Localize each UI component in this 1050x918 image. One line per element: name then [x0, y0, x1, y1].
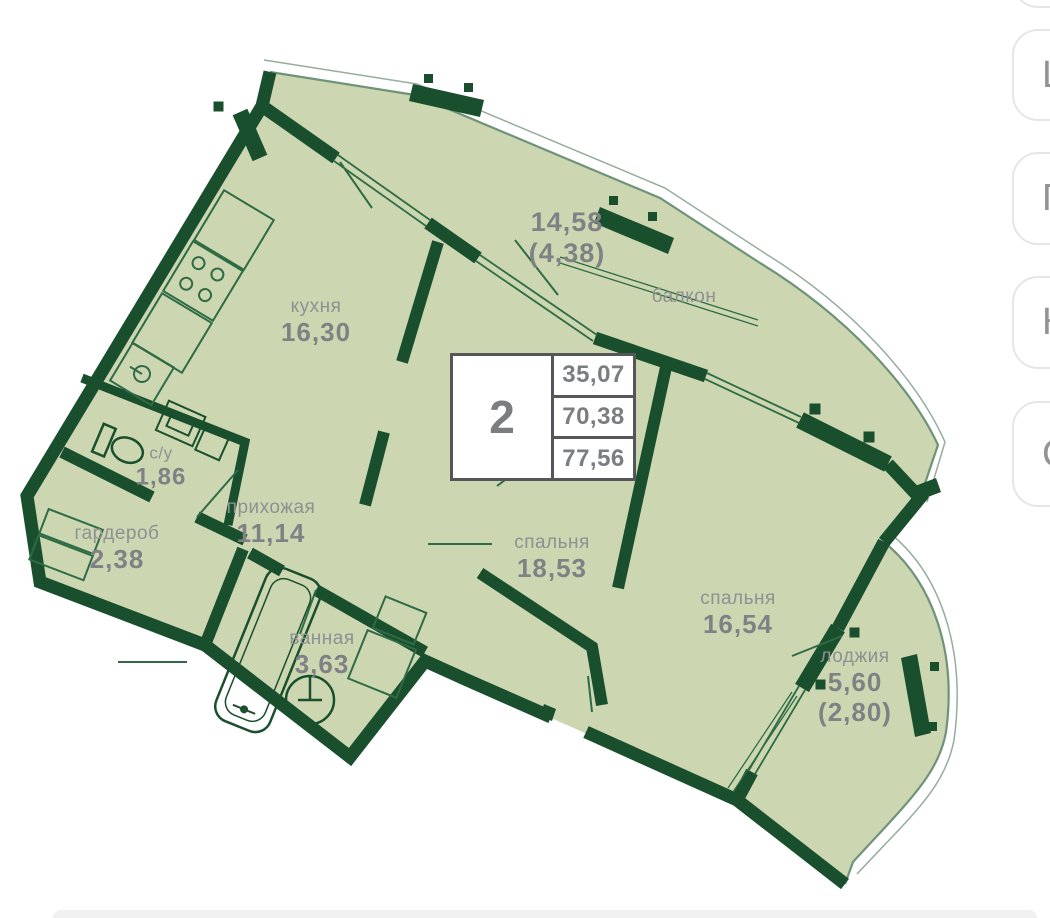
side-button-p[interactable]: П [1012, 152, 1050, 245]
floorplan-canvas: кухня 16,30 14,58 (4,38) балкон с/у 1,86… [0, 0, 1050, 918]
area-total: 70,38 [554, 395, 633, 437]
unit-info-box: 2 35,07 70,38 77,56 [450, 353, 636, 481]
side-button-label: С [1042, 433, 1050, 476]
area-living: 35,07 [554, 356, 633, 395]
areas-column: 35,07 70,38 77,56 [554, 356, 633, 478]
side-button-label: К [1042, 301, 1050, 344]
bottom-card-edge [53, 910, 1037, 918]
area-total-with-balcony: 77,56 [554, 436, 633, 478]
side-button-sh[interactable]: Ш [1012, 29, 1050, 121]
side-button-k[interactable]: К [1012, 276, 1050, 369]
side-button-label: П [1042, 177, 1050, 220]
side-button-s[interactable]: С [1012, 401, 1050, 507]
rooms-count: 2 [453, 356, 554, 478]
side-button-label: Ш [1042, 54, 1050, 97]
